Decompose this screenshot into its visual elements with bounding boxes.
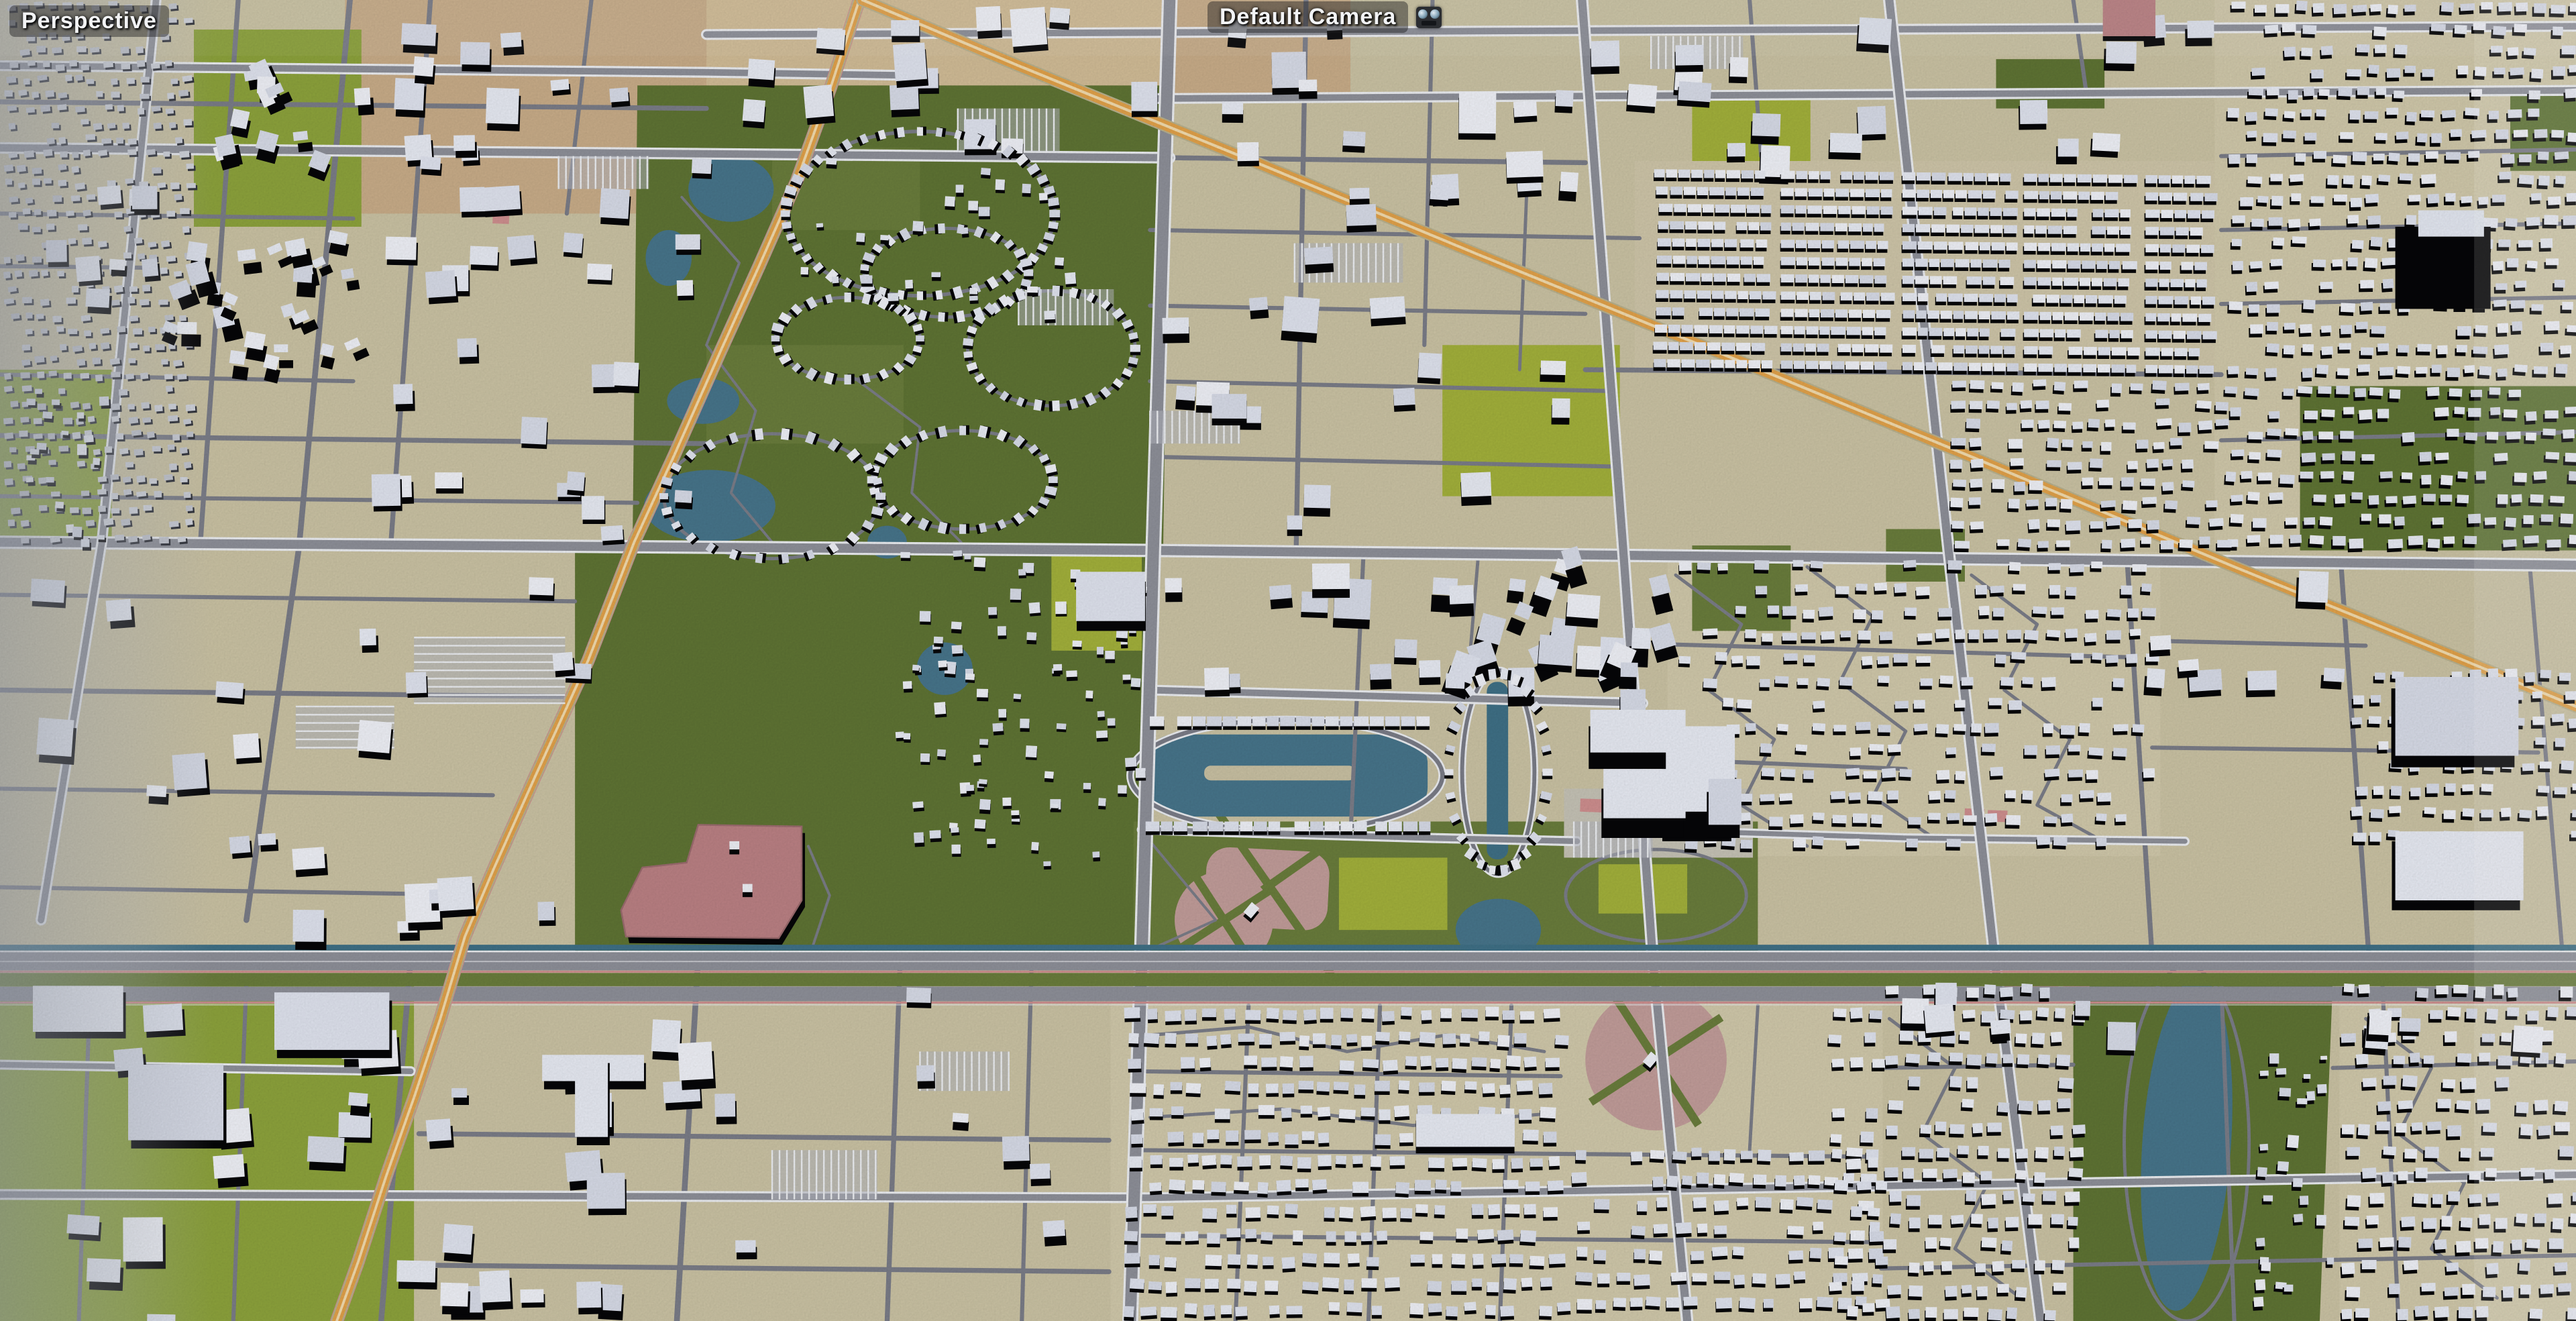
camera-icon[interactable]: [1416, 7, 1442, 28]
camera-label-text: Default Camera: [1207, 1, 1408, 33]
viewport-3d[interactable]: Perspective Default Camera: [0, 0, 2576, 1321]
viewport-label-camera[interactable]: Default Camera: [1207, 1, 1442, 33]
viewport-label-perspective[interactable]: Perspective: [9, 5, 169, 37]
perspective-label-text: Perspective: [9, 5, 169, 37]
app-root: { "viewport": { "perspective_label": "Pe…: [0, 0, 2576, 1321]
viewport-3d-scene[interactable]: [0, 0, 2576, 1321]
